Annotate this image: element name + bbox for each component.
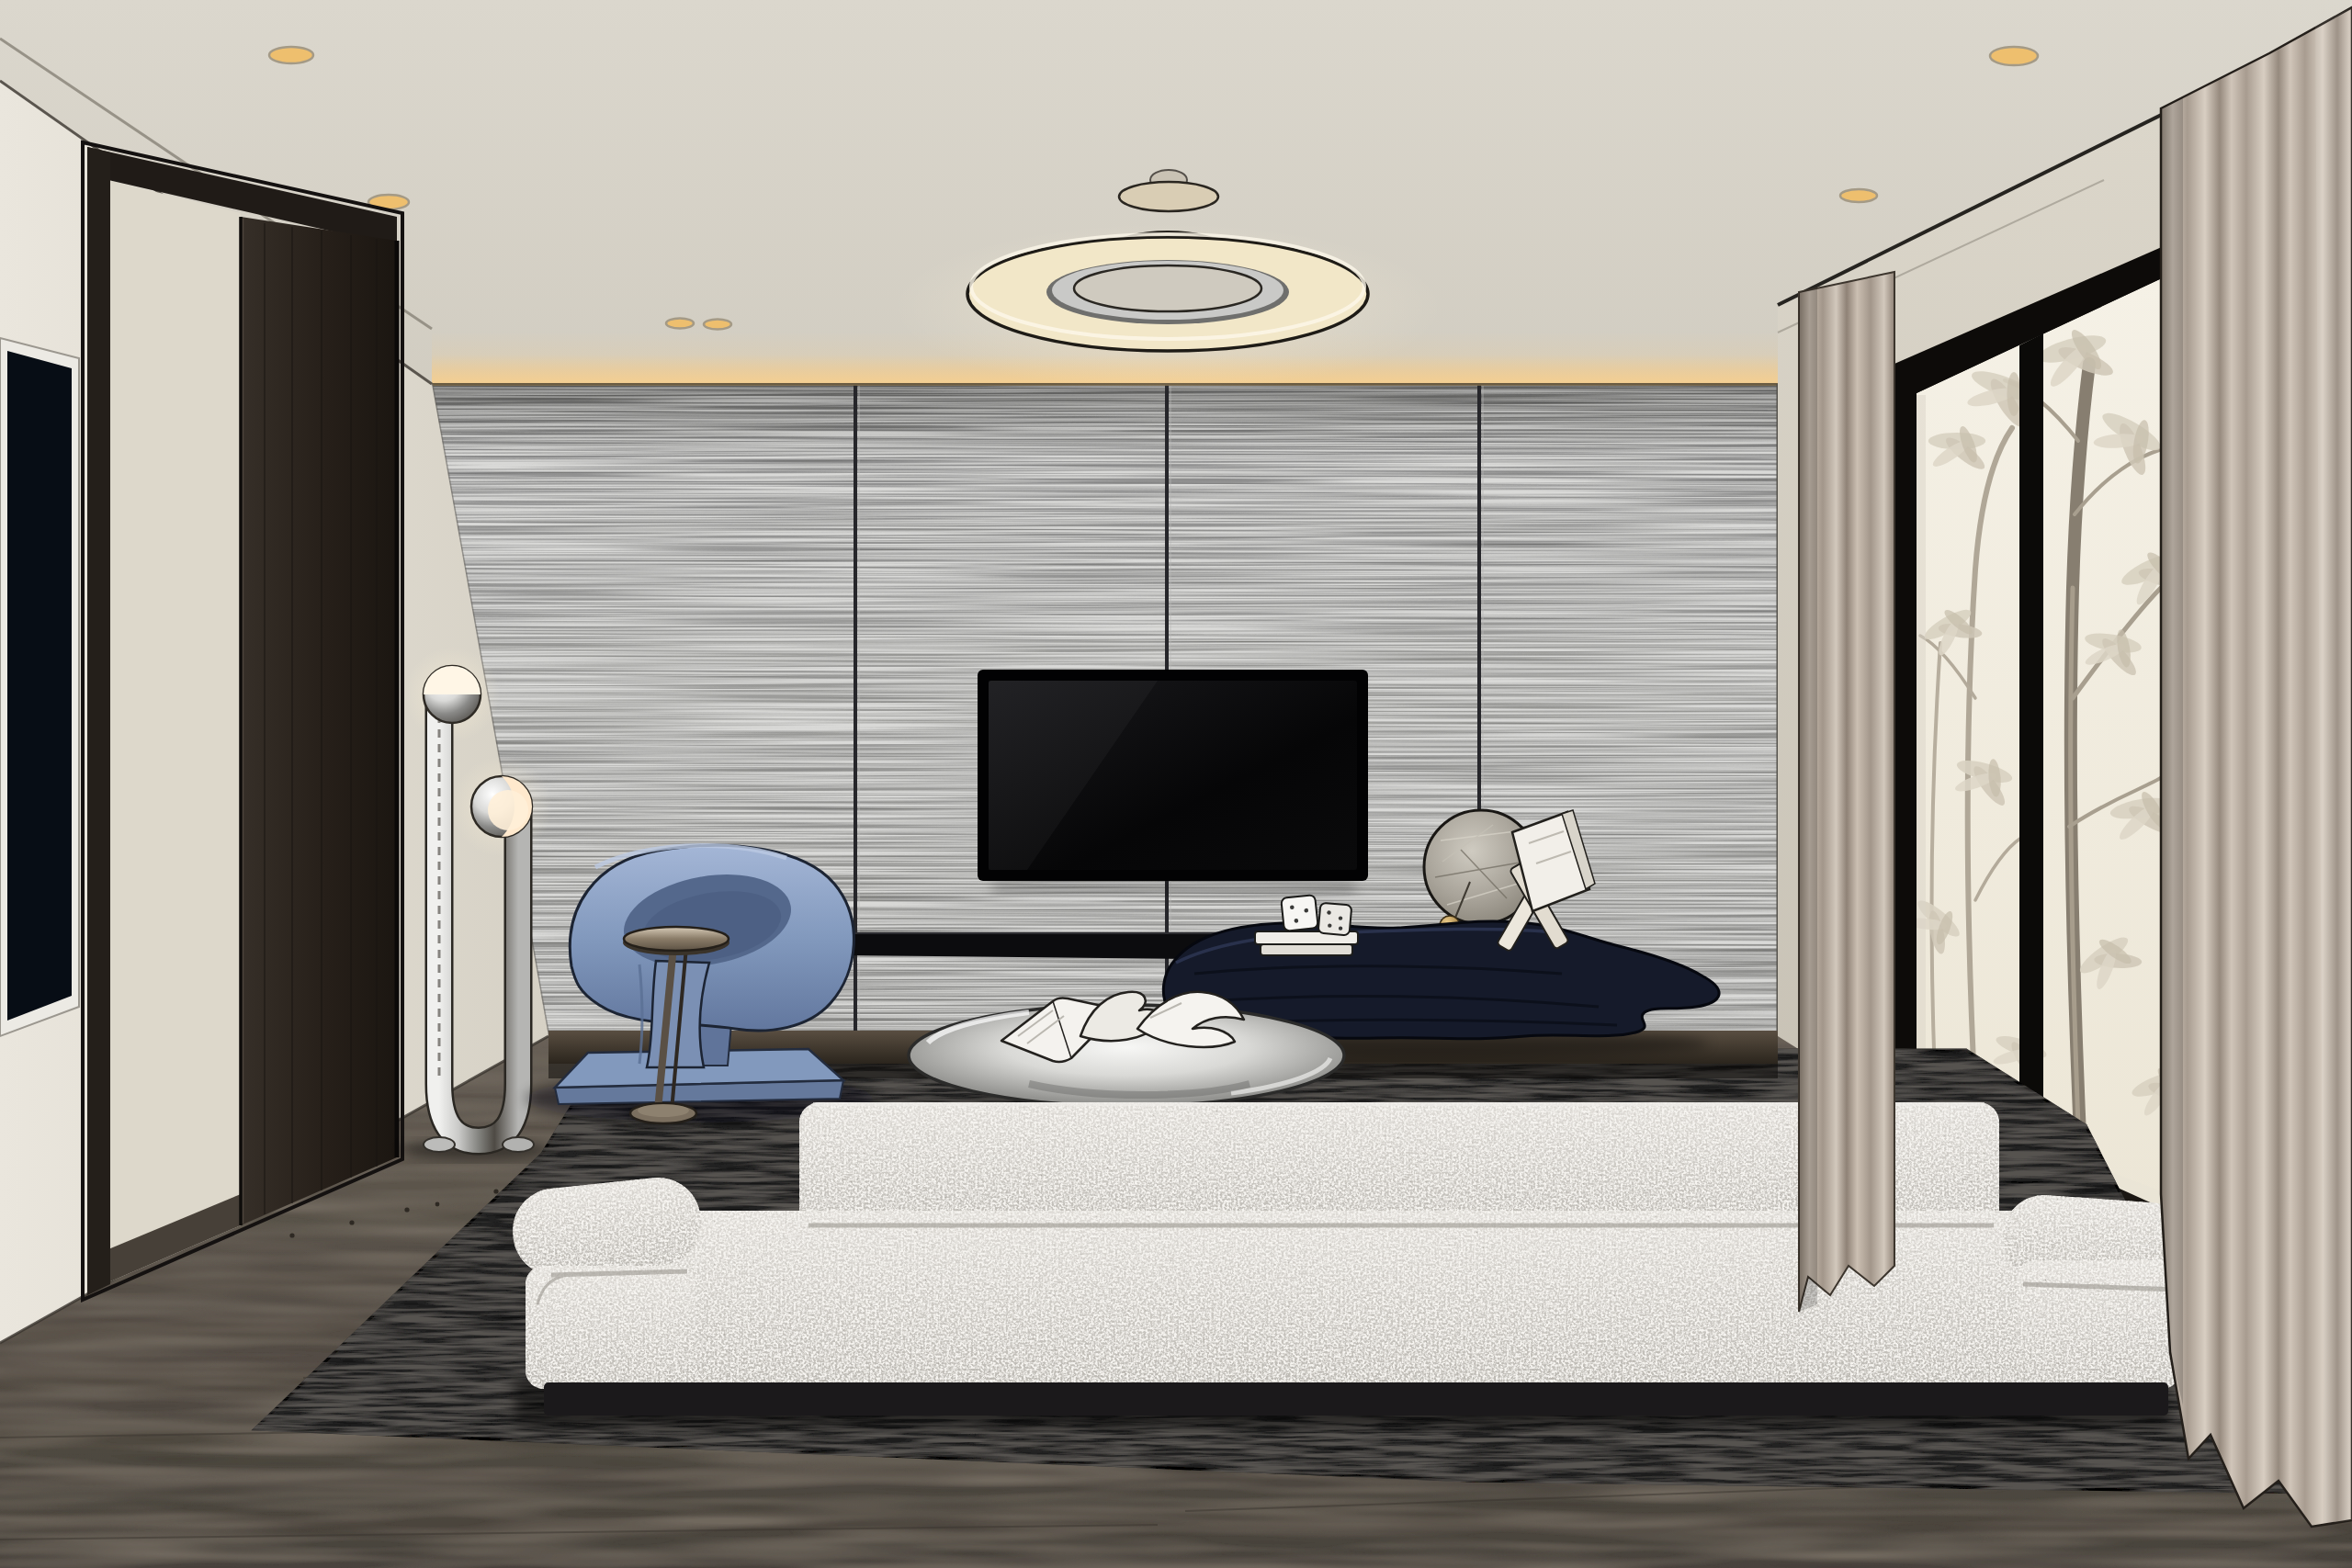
sofa-seat: [537, 1211, 2182, 1387]
door-jamb-left: [87, 147, 110, 1295]
doorway-interior-wall: [108, 180, 241, 1282]
sofa-plinth: [544, 1382, 2168, 1416]
painting-canvas: [7, 351, 72, 1021]
pendant-canopy: [1119, 182, 1218, 211]
lamp-globe-2: [471, 776, 532, 837]
window-mullion: [2019, 333, 2043, 1172]
sofa-left-arm: [526, 1266, 695, 1389]
side-table-top: [624, 927, 729, 951]
glass-edge-highlight: [1917, 395, 1926, 1124]
doorway: [83, 142, 402, 1300]
tv-shadow: [992, 880, 1355, 895]
lamp-globe-1: [424, 666, 481, 723]
curtain-right: [2161, 7, 2352, 1527]
scene-canvas: [0, 0, 2352, 1568]
lamp-foot: [424, 1137, 455, 1152]
abstract-painting: [0, 338, 79, 1036]
downlight-icon: [269, 47, 313, 63]
lamp-foot: [503, 1137, 534, 1152]
downlight-icon: [666, 319, 694, 329]
side-table-base-highlight: [638, 1104, 689, 1117]
sofa-right-arm: [2017, 1260, 2180, 1389]
interior-rendering: [0, 0, 2352, 1568]
downlight-icon: [1840, 189, 1877, 202]
media-wall-top-shadow: [432, 384, 1778, 456]
curtain-left: [1799, 272, 1894, 1312]
pendant-hole: [1074, 265, 1261, 311]
downlight-icon: [1990, 47, 2038, 65]
downlight-icon: [704, 320, 731, 330]
door-panel: [241, 217, 397, 1225]
